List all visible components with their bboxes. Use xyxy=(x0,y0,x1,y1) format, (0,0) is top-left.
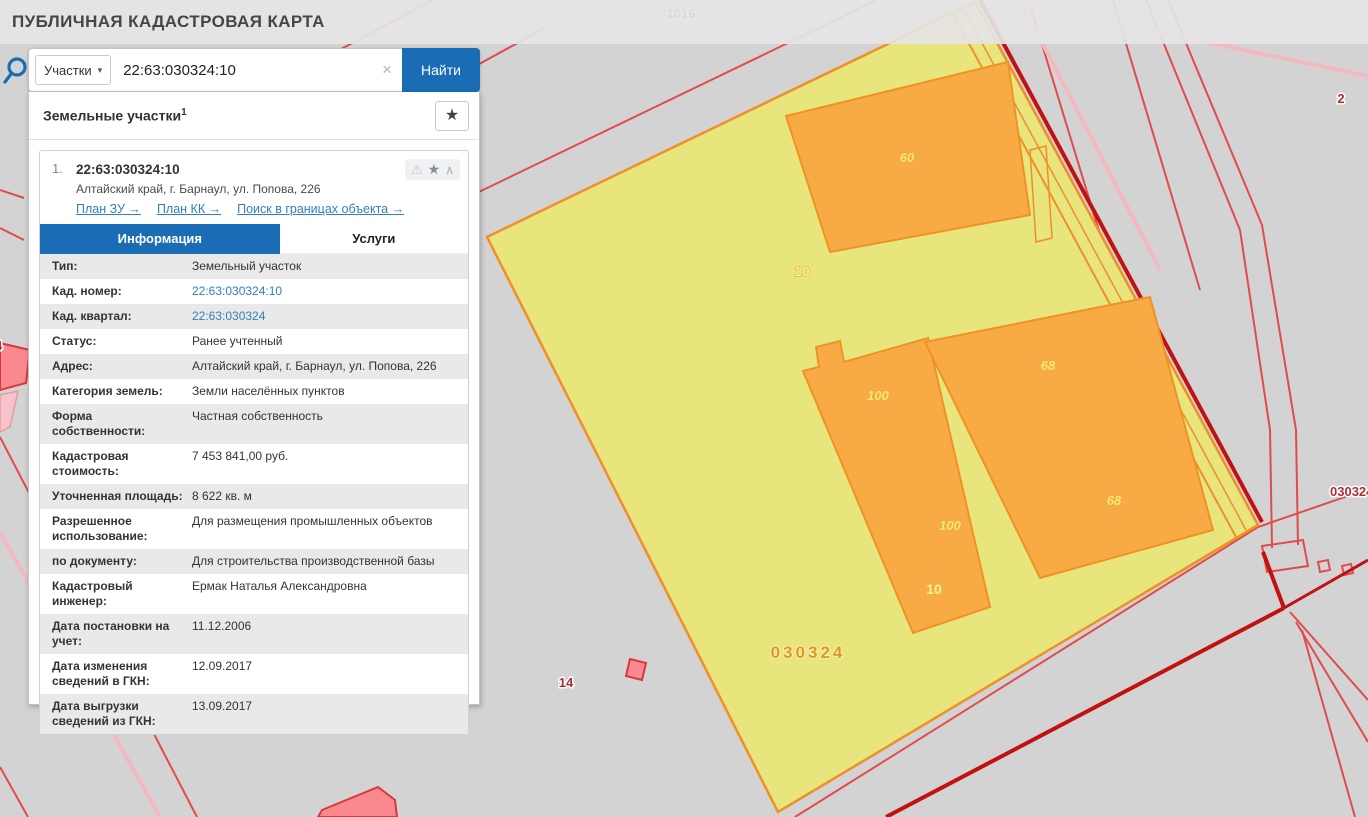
row-label: Форма собственности: xyxy=(40,404,192,444)
row-value: 13.09.2017 xyxy=(192,694,468,734)
tab-information[interactable]: Информация xyxy=(40,224,280,254)
row-label: Кад. квартал: xyxy=(40,304,192,329)
table-row: Адрес:Алтайский край, г. Барнаул, ул. По… xyxy=(40,354,468,379)
row-label: Категория земель: xyxy=(40,379,192,404)
result-cad-number: 22:63:030324:10 xyxy=(76,162,180,177)
table-row: Дата постановки на учет:11.12.2006 xyxy=(40,614,468,654)
map-label: 030324 xyxy=(1330,484,1368,499)
result-actions-chip: ⚠ ★ ∧ xyxy=(405,159,460,180)
row-value-link[interactable]: 22:63:030324:10 xyxy=(192,279,468,304)
result-index: 1. xyxy=(52,161,76,176)
map-label: 10 xyxy=(794,263,810,279)
table-row: Дата изменения сведений в ГКН:12.09.2017 xyxy=(40,654,468,694)
map-label: 14 xyxy=(559,675,574,690)
table-row: Уточненная площадь:8 622 кв. м xyxy=(40,484,468,509)
pink-building-small xyxy=(626,659,646,680)
table-row: Кад. квартал:22:63:030324 xyxy=(40,304,468,329)
map-label: 100 xyxy=(939,518,961,533)
results-panel: Земельные участки1 ★ 1.22:63:030324:10 ⚠… xyxy=(28,92,480,705)
row-value: 8 622 кв. м xyxy=(192,484,468,509)
map-label: 68 xyxy=(1041,358,1056,373)
row-value: 11.12.2006 xyxy=(192,614,468,654)
result-card-header: 1.22:63:030324:10 ⚠ ★ ∧ Алтайский край, … xyxy=(40,151,468,216)
row-label: Тип: xyxy=(40,254,192,279)
collapse-icon[interactable]: ∧ xyxy=(445,163,454,177)
results-panel-header: Земельные участки1 ★ xyxy=(29,92,479,140)
row-label: Кад. номер: xyxy=(40,279,192,304)
clear-search-icon[interactable]: × xyxy=(372,60,402,80)
app-title: ПУБЛИЧНАЯ КАДАСТРОВАЯ КАРТА xyxy=(0,12,325,32)
row-value: Земельный участок xyxy=(192,254,468,279)
table-row: Кад. номер:22:63:030324:10 xyxy=(40,279,468,304)
map-label: 60 xyxy=(900,150,915,165)
find-button[interactable]: Найти xyxy=(402,48,480,92)
row-label: Дата выгрузки сведений из ГКН: xyxy=(40,694,192,734)
table-row: Категория земель:Земли населённых пункто… xyxy=(40,379,468,404)
attributes-table: Тип:Земельный участокКад. номер:22:63:03… xyxy=(40,254,468,734)
search-icon[interactable] xyxy=(2,55,28,89)
plan-kk-link[interactable]: План КК → xyxy=(157,202,221,216)
row-value: Частная собственность xyxy=(192,404,468,444)
app-header: ПУБЛИЧНАЯ КАДАСТРОВАЯ КАРТА xyxy=(0,0,1368,44)
row-label: по документу: xyxy=(40,549,192,574)
row-label: Кадастровая стоимость: xyxy=(40,444,192,484)
map-label: 68 xyxy=(1107,493,1122,508)
search-in-bounds-link[interactable]: Поиск в границах объекта → xyxy=(237,202,404,216)
row-value: Для строительства производственной базы xyxy=(192,549,468,574)
row-value: Ранее учтенный xyxy=(192,329,468,354)
cadastral-map-app: 101621403032441060100100686810030324 ПУБ… xyxy=(0,0,1368,817)
chevron-down-icon: ▾ xyxy=(98,65,103,76)
row-label: Дата изменения сведений в ГКН: xyxy=(40,654,192,694)
table-row: Дата выгрузки сведений из ГКН:13.09.2017 xyxy=(40,694,468,734)
table-row: Статус:Ранее учтенный xyxy=(40,329,468,354)
row-value: Ермак Наталья Александровна xyxy=(192,574,468,614)
row-value: 7 453 841,00 руб. xyxy=(192,444,468,484)
result-tabs: ИнформацияУслуги xyxy=(40,224,468,254)
row-label: Кадастровый инженер: xyxy=(40,574,192,614)
row-value: Алтайский край, г. Барнаул, ул. Попова, … xyxy=(192,354,468,379)
row-label: Разрешенное использование: xyxy=(40,509,192,549)
map-label: 10 xyxy=(926,581,942,597)
search-category-dropdown[interactable]: Участки ▾ xyxy=(35,55,111,85)
table-row: Разрешенное использование:Для размещения… xyxy=(40,509,468,549)
row-label: Дата постановки на учет: xyxy=(40,614,192,654)
table-row: Форма собственности:Частная собственност… xyxy=(40,404,468,444)
map-label: 2 xyxy=(1337,91,1344,106)
table-row: Кадастровая стоимость:7 453 841,00 руб. xyxy=(40,444,468,484)
row-value: Земли населённых пунктов xyxy=(192,379,468,404)
tab-services[interactable]: Услуги xyxy=(280,224,468,254)
results-title: Земельные участки1 xyxy=(43,107,187,124)
table-row: Кадастровый инженер:Ермак Наталья Алекса… xyxy=(40,574,468,614)
favorite-star-button[interactable]: ★ xyxy=(435,101,469,131)
search-bar: Участки ▾ × Найти xyxy=(28,48,480,92)
result-links: План ЗУ →План КК →Поиск в границах объек… xyxy=(76,202,458,216)
row-label: Адрес: xyxy=(40,354,192,379)
plan-zu-link[interactable]: План ЗУ → xyxy=(76,202,141,216)
row-value: 12.09.2017 xyxy=(192,654,468,694)
pink-parcel-left xyxy=(0,343,30,390)
table-row: по документу:Для строительства производс… xyxy=(40,549,468,574)
favorite-icon[interactable]: ★ xyxy=(428,161,441,178)
row-label: Статус: xyxy=(40,329,192,354)
parcel-result-card: 1.22:63:030324:10 ⚠ ★ ∧ Алтайский край, … xyxy=(39,150,469,735)
row-value-link[interactable]: 22:63:030324 xyxy=(192,304,468,329)
map-label: 100 xyxy=(867,388,889,403)
table-row: Тип:Земельный участок xyxy=(40,254,468,279)
search-input[interactable] xyxy=(111,50,372,90)
row-value: Для размещения промышленных объектов xyxy=(192,509,468,549)
map-label: 030324 xyxy=(771,643,846,662)
row-label: Уточненная площадь: xyxy=(40,484,192,509)
result-address: Алтайский край, г. Барнаул, ул. Попова, … xyxy=(76,182,458,196)
results-count: 1 xyxy=(181,107,187,118)
warning-icon[interactable]: ⚠ xyxy=(411,162,423,178)
search-category-label: Участки xyxy=(44,63,92,78)
